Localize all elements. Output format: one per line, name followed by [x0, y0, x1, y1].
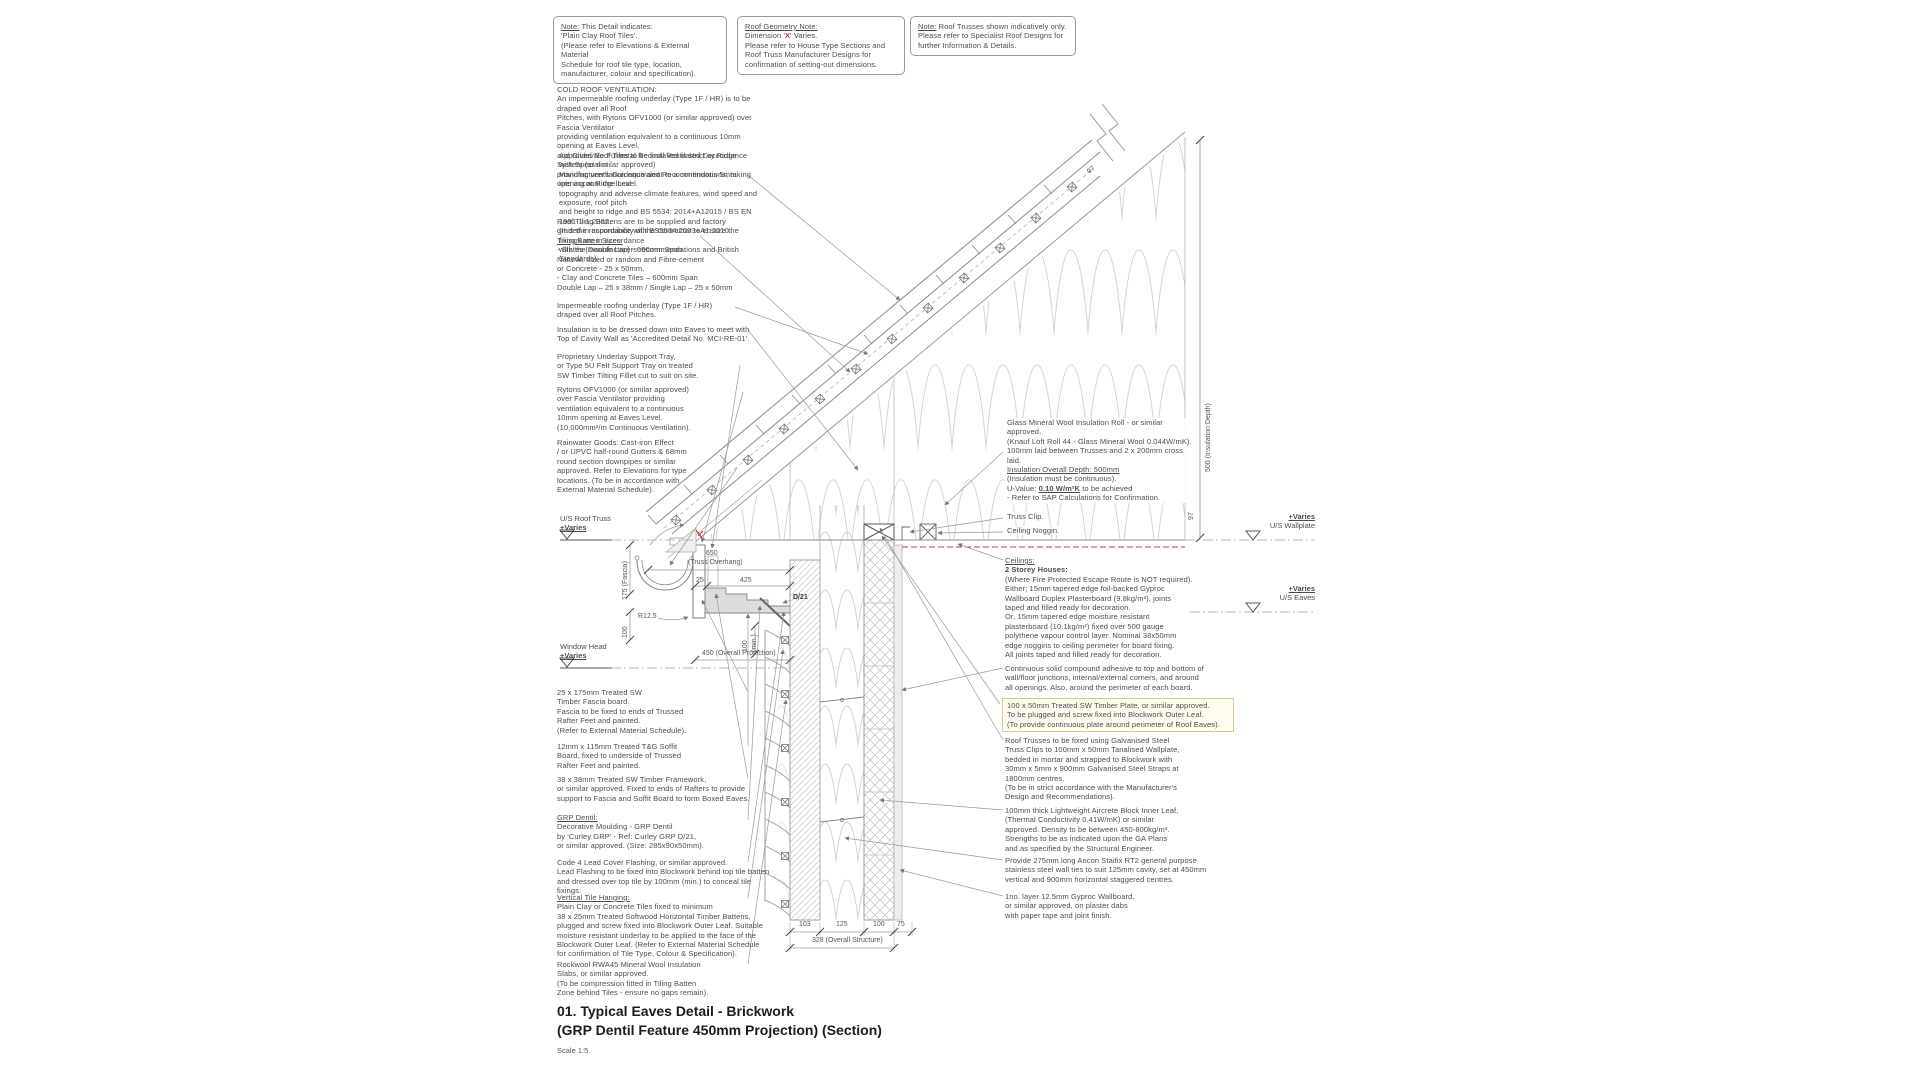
- note-underlay: Impermeable roofing underlay (Type 1F / …: [557, 301, 757, 320]
- note-truss-fixing: Roof Trusses to be fixed using Galvanise…: [1005, 736, 1215, 802]
- note-lead-flashing: Code 4 Lead Cover Flashing, or similar a…: [557, 858, 777, 896]
- dim-75: 75: [897, 921, 905, 930]
- dim-fascia-175: 175 (Fascia): [622, 561, 631, 600]
- dim-truss-overhang: 650: [706, 550, 718, 559]
- drawing-scale: Scale 1:5: [557, 1046, 588, 1055]
- drawing-title-line2: (GRP Dentil Feature 450mm Projection) (S…: [557, 1021, 882, 1039]
- datum-window-head: Window Head+Varies: [560, 642, 607, 660]
- note-timber-plate-highlighted: 100 x 50mm Treated SW Timber Plate, or s…: [1002, 698, 1234, 732]
- note-box-trusses: Note: Roof Trusses shown indicatively on…: [910, 16, 1076, 56]
- dim-100: 100: [622, 626, 631, 638]
- dim-125: 125: [836, 921, 848, 930]
- note-body: 'Plain Clay Roof Tiles'. (Please refer t…: [561, 31, 719, 78]
- dim-425: 425: [740, 577, 752, 586]
- note-rytons-ofv1000: Rytons OFV1000 (or similar approved) ove…: [557, 385, 757, 432]
- dim-100-min: 100 (min.): [742, 634, 759, 652]
- dim-overall-structure: 328 (Overall Structure): [812, 937, 883, 946]
- note-aircrete-inner-leaf: 100mm thick Lightweight Aircrete Block I…: [1005, 806, 1215, 853]
- note-tiling-battens: Roof Tiling Battens are to be supplied a…: [557, 217, 757, 292]
- note-grp-dentil: GRP Dentil:Decorative Moulding - GRP Den…: [557, 813, 757, 851]
- note-wall-ties: Provide 275mm long Ancon Staifix RT2 gen…: [1005, 856, 1225, 884]
- drawing-title-line1: 01. Typical Eaves Detail - Brickwork: [557, 1002, 794, 1020]
- dim-overall-projection: 450 (Overall Projection): [702, 650, 776, 659]
- note-glass-mineral-wool: Glass Mineral Wool Insulation Roll - or …: [1005, 418, 1199, 503]
- note-fascia-board: 25 x 175mm Treated SW Timber Fascia boar…: [557, 688, 757, 735]
- note-gyproc-wallboard: 1no. layer 12.5mm Gyproc Wallboard, or s…: [1005, 892, 1205, 920]
- note-box-roof-geometry: Roof Geometry Note: Dimension 'X' Varies…: [737, 16, 905, 75]
- dim-insulation-depth: 500 (Insulation Depth): [1205, 403, 1214, 472]
- note-heading: Roof Geometry Note:: [745, 22, 897, 31]
- datum-us-eaves: +VariesU/S Eaves: [1240, 584, 1315, 602]
- note-label: Note:: [561, 22, 579, 31]
- dim-103: 103: [799, 921, 811, 930]
- note-insulation-dressed: Insulation is to be dressed down into Ea…: [557, 325, 767, 344]
- eaves-detail-drawing: [0, 0, 1920, 1080]
- note-rainwater-goods: Rainwater Goods: Cast-iron Effect / or U…: [557, 438, 757, 494]
- dim-97-right: 97: [1188, 512, 1197, 520]
- note-body: Please refer to Specialist Roof Designs …: [918, 31, 1068, 50]
- note-vertical-tile-hanging: Vertical Tile Hanging:Plain Clay or Conc…: [557, 893, 777, 959]
- gutter: [635, 556, 695, 590]
- note-box-tiles: Note: This Detail indicates: 'Plain Clay…: [553, 16, 727, 84]
- label-truss-clip: Truss Clip.: [1005, 512, 1046, 521]
- note-rockwool-insulation: Rockwool RWA45 Mineral Wool Insulation S…: [557, 960, 757, 998]
- datum-us-roof-truss: U/S Roof Truss+Varies: [560, 514, 611, 532]
- note-body: Please refer to House Type Sections and …: [745, 41, 897, 69]
- u-value: 0.10 W/m²K: [1039, 484, 1080, 493]
- note-soffit-board: 12mm x 115mm Treated T&G Soffit Board, f…: [557, 742, 757, 770]
- drawing-sheet: { "colors": {"accent_red": "#c0392b", "l…: [0, 0, 1920, 1080]
- note-adhesive: Continuous solid compound adhesive to to…: [1005, 664, 1220, 692]
- note-timber-framework: 38 x 38mm Treated SW Timber Framework, o…: [557, 775, 767, 803]
- dim-100b: 100: [873, 921, 885, 930]
- dim-25: 25: [696, 577, 704, 586]
- note-label: Note:: [918, 22, 936, 31]
- dim-r12-5: R12.5: [638, 613, 657, 622]
- grp-dentil-moulding: [705, 588, 790, 613]
- datum-us-wallplate: +VariesU/S Wallplate: [1240, 512, 1315, 530]
- label-ceiling-noggin: Ceiling Noggin.: [1005, 526, 1061, 535]
- dim-truss-overhang-label: (Truss Overhang): [688, 559, 743, 568]
- dim-d21-ref: D/21: [793, 594, 808, 603]
- note-ceilings: Ceilings:2 Storey Houses:(Where Fire Pro…: [1005, 556, 1215, 659]
- note-underlay-support-tray: Proprietary Underlay Support Tray, or Ty…: [557, 352, 757, 380]
